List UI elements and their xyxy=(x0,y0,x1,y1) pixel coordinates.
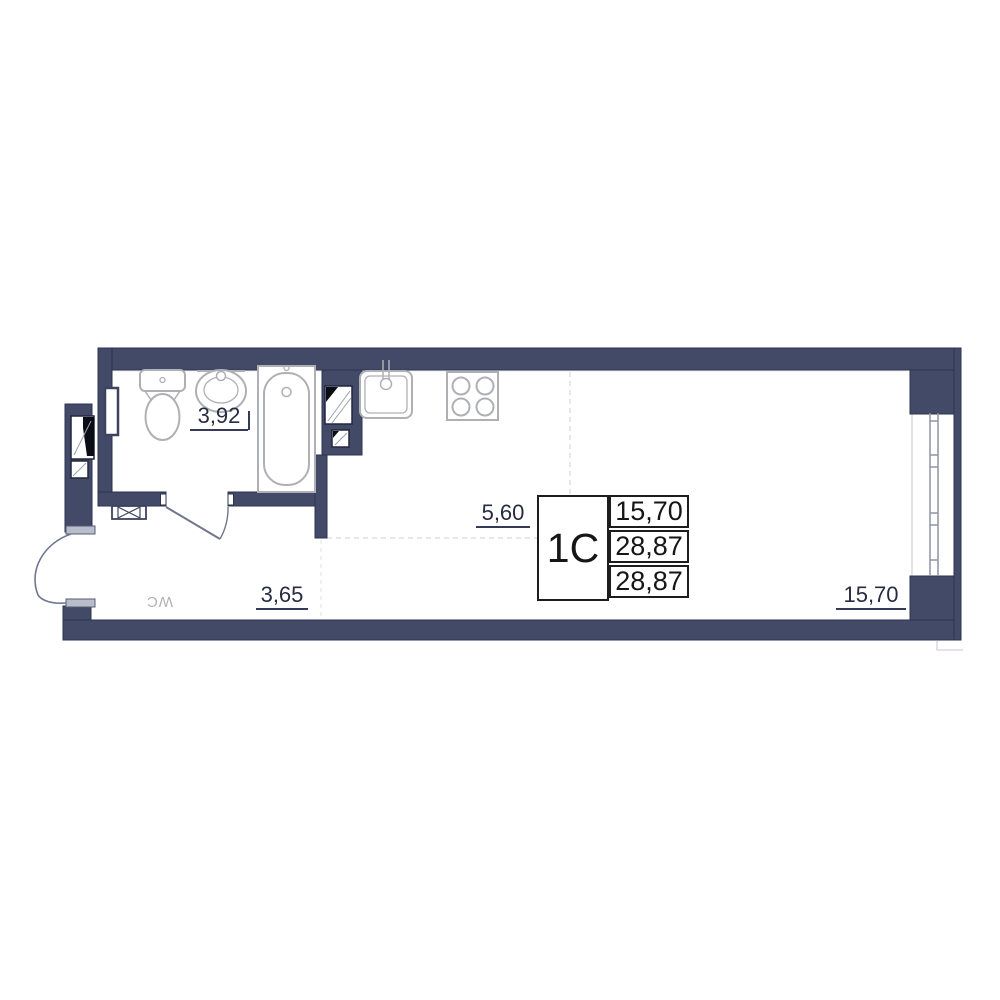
dimension-hall-width: 3,65 xyxy=(256,583,308,610)
unit-area-column: 15,70 28,87 28,87 xyxy=(609,495,689,601)
unit-area-row: 28,87 xyxy=(609,565,689,598)
wall-bath-bottom-right xyxy=(228,492,327,506)
wall-bath-bottom-left xyxy=(98,492,166,506)
wall-right-top-block xyxy=(910,370,956,414)
stove-4-burner-icon xyxy=(447,372,498,420)
wc-room-label: WC xyxy=(146,593,173,610)
wall-right-outer-line xyxy=(954,348,961,640)
vent-grate-icon xyxy=(112,506,146,519)
unit-area-row: 28,87 xyxy=(609,530,689,563)
wall-bottom xyxy=(63,620,956,640)
wall-top xyxy=(98,348,958,370)
unit-info-box: 1C 15,70 28,87 28,87 xyxy=(537,495,689,601)
dimension-tick xyxy=(248,411,250,430)
bathtub-icon xyxy=(258,366,315,493)
entrance-door-swing-icon xyxy=(35,526,95,607)
dimension-living-length: 15,70 xyxy=(836,583,906,610)
wall-bath-right-lower xyxy=(315,455,327,538)
unit-area-row: 15,70 xyxy=(609,495,689,528)
radiator-icon xyxy=(105,388,118,435)
window-icon xyxy=(930,413,938,576)
toilet-icon xyxy=(140,370,185,440)
dimension-bathroom-width: 3,92 xyxy=(190,404,248,431)
bathroom-door-swing-icon xyxy=(161,494,234,539)
unit-code: 1C xyxy=(537,495,609,601)
floor-plan-canvas: 3,92 5,60 3,65 15,70 WC 1C 15,70 28,87 2… xyxy=(0,0,1000,1000)
dimension-living-width: 5,60 xyxy=(476,501,530,528)
